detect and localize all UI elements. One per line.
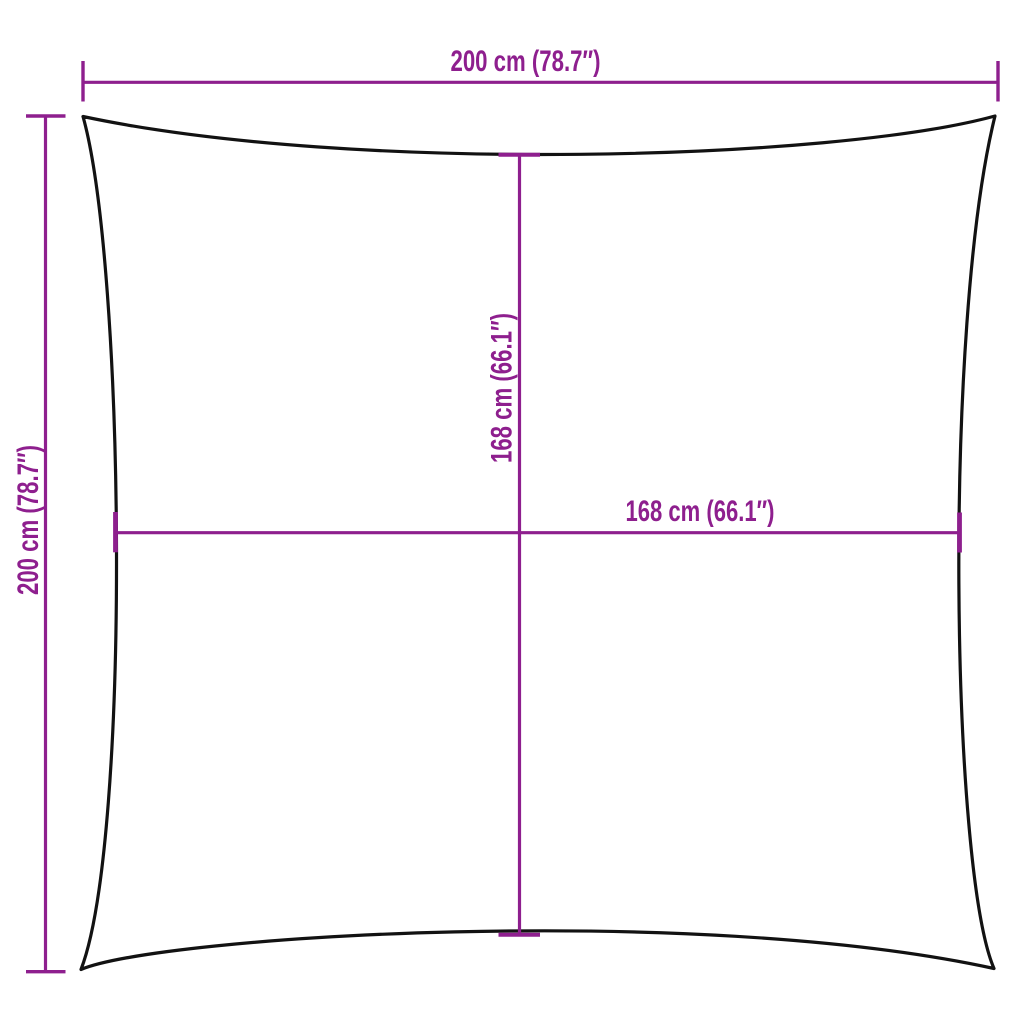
svg-text:200 cm (78.7″): 200 cm (78.7″) (451, 45, 601, 78)
svg-text:168 cm (66.1″): 168 cm (66.1″) (626, 495, 775, 528)
svg-text:200 cm (78.7″): 200 cm (78.7″) (12, 445, 45, 595)
svg-text:168 cm (66.1″): 168 cm (66.1″) (486, 313, 519, 463)
